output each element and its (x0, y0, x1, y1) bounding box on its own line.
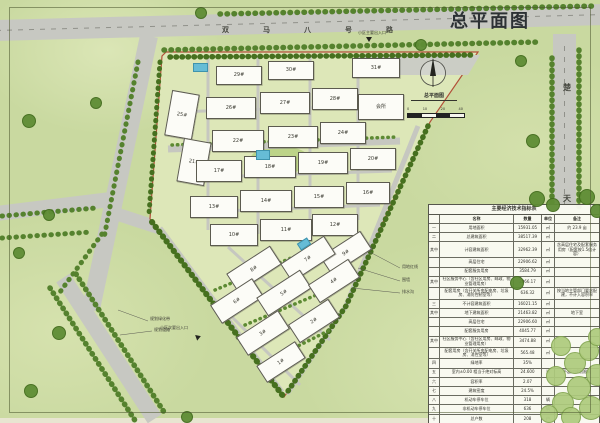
building-label: 23# (288, 135, 299, 140)
cell-seq (429, 327, 440, 335)
table-row: 其中 计容建筑面积 32962.39 ㎡ 含高层住宅及配套服务用房（配套按1.5… (429, 242, 599, 258)
tree-icon (590, 204, 600, 218)
cell-unit: ㎡ (542, 309, 555, 317)
cell-name: 容积率 (440, 378, 514, 386)
table-row: 其中 社区服务中心（含社区用房、邮政、物业管理用房） 3474.88 ㎡ (429, 337, 599, 348)
cell-note (555, 233, 599, 241)
building-label: 会所 (376, 105, 386, 110)
cell-unit: ㎡ (542, 242, 555, 257)
building-label: 7# (304, 255, 313, 263)
cell-name: 配套用房（含开关所变配电房、垃圾房、消控室等） (440, 348, 514, 358)
pool (193, 63, 208, 72)
tree-icon (526, 134, 540, 148)
tree-icon (579, 396, 600, 420)
building-label: 9# (342, 249, 351, 257)
building: 13# (190, 196, 238, 218)
header-name: 名称 (440, 215, 514, 223)
cell-note (555, 268, 599, 276)
building: 20# (350, 148, 396, 170)
building-label: 11# (281, 228, 292, 233)
tree-icon (579, 189, 595, 205)
cell-note: 约 23.9 亩 (555, 224, 599, 232)
cell-name: 社区服务中心（含社区用房、邮政、物业管理用房） (440, 277, 514, 287)
building: 12# (312, 214, 358, 236)
building-label: 8# (250, 265, 259, 273)
table-row: 高层住宅 22906.62 ㎡ (429, 258, 599, 267)
cell-seq: 六 (429, 378, 440, 386)
boundary-note-2: 围墙 (402, 277, 410, 283)
cell-qty: 2.07 (514, 378, 542, 386)
building: 会所 (358, 94, 404, 120)
building-label: 27# (280, 101, 291, 106)
building-label: 28# (330, 97, 341, 102)
cell-name: 建筑密度 (440, 387, 514, 395)
table-row: 二 总建筑面积 38517.39 ㎡ (429, 233, 599, 242)
cell-seq: 八 (429, 396, 440, 404)
cell-seq (429, 288, 440, 298)
cell-unit: ㎡ (542, 233, 555, 241)
building: 28# (312, 88, 358, 110)
tree-icon (195, 7, 207, 19)
cell-qty: 16021.15 (514, 300, 542, 308)
cell-qty: 22906.62 (514, 258, 542, 266)
tree-icon (510, 276, 524, 290)
tree-icon (24, 384, 38, 398)
tree-icon (181, 411, 193, 423)
building: 29# (216, 66, 262, 85)
road-right-centerline (564, 40, 565, 205)
building-label: 1# (277, 358, 286, 366)
building-label: 17# (214, 169, 225, 174)
building: 25# (164, 90, 200, 140)
cell-seq: 三 (429, 300, 440, 308)
tree-icon (90, 97, 102, 109)
cell-qty: 35% (514, 359, 542, 367)
cell-name: 配套服务用房 (440, 327, 514, 335)
scale-10: 10 (423, 107, 427, 111)
building: 23# (268, 126, 318, 148)
road-left-vertical (82, 34, 158, 312)
building-label: 25# (176, 112, 187, 119)
cell-note: 含高层住宅及配套服务用房（配套按1.5倍计容） (555, 242, 599, 257)
building: 10# (210, 224, 258, 246)
cell-name: 总建筑面积 (440, 233, 514, 241)
cell-seq (429, 348, 440, 358)
building-label: 13# (209, 205, 220, 210)
north-arrow-icon (421, 58, 446, 87)
building: 14# (240, 190, 292, 212)
cell-qty: 318 (514, 396, 542, 404)
table-row: 配套用房（含开关所变配电房、垃圾房、消防控制室等） 636.32 ㎡ 按当地主管… (429, 288, 599, 299)
cell-seq: 五 (429, 369, 440, 377)
cell-unit (542, 387, 555, 395)
drawing-title: 总平面图 (450, 7, 530, 33)
cell-note (555, 318, 599, 326)
cell-unit: ㎡ (542, 224, 555, 232)
cell-name: 机动车停车位 (440, 396, 514, 404)
building: 19# (298, 152, 348, 174)
cell-qty: 4045.77 (514, 327, 542, 335)
cell-note (555, 300, 599, 308)
cell-unit: ㎡ (542, 300, 555, 308)
cell-note (555, 277, 599, 287)
building: 5# (256, 270, 312, 317)
cell-qty: 565.48 (514, 348, 542, 358)
header-seq (429, 215, 440, 223)
cell-name: 地下建筑面积 (440, 309, 514, 317)
building: 15# (294, 186, 344, 208)
cell-seq (429, 268, 440, 276)
tree-icon (546, 198, 560, 212)
building: 22# (212, 130, 264, 152)
road-name-right-char1: 楚 (563, 82, 571, 93)
tree-icon (546, 366, 566, 386)
table-title: 主要经济技术指标表 (429, 205, 599, 215)
secondary-entrance-marker-icon (195, 333, 202, 340)
cell-name: 高层住宅 (440, 258, 514, 266)
building: 18# (244, 156, 296, 178)
building-label: 15# (314, 195, 325, 200)
building: 16# (346, 182, 390, 204)
cell-unit: ㎡ (542, 277, 555, 287)
cell-seq: 四 (429, 359, 440, 367)
cell-name: 高层住宅 (440, 318, 514, 326)
cell-name: 用地面积 (440, 224, 514, 232)
compass-caption: 总平面图 (411, 92, 457, 101)
scalebar (407, 113, 465, 118)
tree-icon (540, 405, 558, 423)
scalebar-numbers: 0 10 20 40 (407, 107, 463, 111)
building-label: 2# (310, 317, 319, 325)
road-southwest (56, 274, 161, 423)
cell-name: 配套用房（含开关所变配电房、垃圾房、消防控制室等） (440, 288, 514, 298)
cell-unit: ㎡ (542, 258, 555, 266)
cell-qty: 24.600 (514, 369, 542, 377)
building: 27# (260, 92, 310, 114)
building-label: 29# (234, 73, 245, 78)
building-label: 5# (280, 289, 289, 297)
cell-seq: 九 (429, 405, 440, 413)
pool (256, 150, 270, 160)
tree-icon (43, 209, 55, 221)
building-label: 16# (363, 191, 374, 196)
building-label: 18# (265, 165, 276, 170)
header-qty: 数量 (514, 215, 542, 223)
tree-icon (13, 247, 25, 259)
scale-20: 20 (441, 107, 445, 111)
cell-name: 非机动车停车位 (440, 405, 514, 413)
cell-name: 总户数 (440, 415, 514, 423)
cell-qty: 22906.60 (514, 318, 542, 326)
table-row: 高层住宅 22906.60 ㎡ (429, 318, 599, 327)
scale-0: 0 (407, 107, 409, 111)
cell-seq: 其中 (429, 242, 440, 257)
boundary-note-3: 排水沟 (402, 289, 414, 295)
cell-qty: 3584.79 (514, 268, 542, 276)
tree-icon (529, 191, 545, 207)
building-label: 14# (261, 199, 272, 204)
cell-unit: ㎡ (542, 327, 555, 335)
cell-note: 按当地主管部门要求配建，不计入容积率 (555, 288, 599, 298)
scale-40: 40 (459, 107, 463, 111)
cell-seq: 其中 (429, 337, 440, 347)
building-label: 30# (286, 68, 297, 73)
building: 26# (206, 97, 256, 119)
table-row: 三 不计容建筑面积 16021.15 ㎡ (429, 300, 599, 309)
cell-seq: 二 (429, 233, 440, 241)
tree-icon (515, 55, 527, 67)
table-row: 配套服务用房 4045.77 ㎡ (429, 327, 599, 336)
site-plan-sheet: 29# 30# 31# 25# 26# 27# 28# (0, 0, 600, 423)
cell-note (555, 258, 599, 266)
cell-name: 绿地率 (440, 359, 514, 367)
cell-seq (429, 318, 440, 326)
building: 17# (196, 160, 242, 182)
cell-qty: 3474.88 (514, 337, 542, 347)
tree-icon (22, 114, 36, 128)
building-label: 12# (330, 223, 341, 228)
cell-seq: 七 (429, 387, 440, 395)
cell-qty: 636 (514, 405, 542, 413)
building-label: 19# (318, 161, 329, 166)
building-label: 20# (368, 157, 379, 162)
building-label: 4# (330, 277, 339, 285)
building: 24# (320, 122, 366, 144)
cell-unit: ㎡ (542, 268, 555, 276)
cell-unit: ㎡ (542, 288, 555, 298)
tree-icon (415, 39, 427, 51)
cell-qty: 21463.82 (514, 309, 542, 317)
cell-seq: 十 (429, 415, 440, 423)
building-label: 10# (229, 233, 240, 238)
building-label: 24# (338, 131, 349, 136)
cell-unit: ㎡ (542, 318, 555, 326)
cell-note: 地下室 (555, 309, 599, 317)
southwest-note-2: 规划道路 (154, 327, 170, 333)
building-label: 6# (233, 297, 242, 305)
cell-qty: 38517.39 (514, 233, 542, 241)
cell-seq: 其中 (429, 309, 440, 317)
cell-name: 不计容建筑面积 (440, 300, 514, 308)
tree-icon (561, 407, 581, 423)
cell-name: 室内±0.00 相当于绝对标高 (440, 369, 514, 377)
main-entrance-label: 小区主要出入口 (344, 30, 400, 36)
cell-seq (429, 258, 440, 266)
building: 31# (352, 58, 400, 78)
cell-name: 计容建筑面积 (440, 242, 514, 257)
cell-seq: 一 (429, 224, 440, 232)
building: 30# (268, 61, 314, 80)
building: 2# (288, 299, 340, 344)
building-label: 31# (371, 66, 382, 71)
cell-qty: 15931.05 (514, 224, 542, 232)
table-row: 一 用地面积 15931.05 ㎡ 约 23.9 亩 (429, 224, 599, 233)
boundary-note-1: 用地红线 (402, 264, 418, 270)
southwest-note-1: 规划绿化带 (150, 316, 170, 322)
table-header-row: 名称 数量 单位 备注 (429, 215, 599, 224)
road-left-stub (110, 206, 182, 241)
cell-qty: 24.5% (514, 387, 542, 395)
building: 1# (256, 341, 305, 383)
road-name-right-char2: 天 (563, 193, 571, 204)
cell-name: 社区服务中心（含社区用房、邮政、物业管理用房） (440, 337, 514, 347)
cell-qty: 208 (514, 415, 542, 423)
tree-icon (588, 328, 600, 346)
cell-qty: 32962.39 (514, 242, 542, 257)
cell-seq: 其中 (429, 277, 440, 287)
tree-icon (52, 326, 66, 340)
building-label: 3# (259, 329, 268, 337)
header-unit: 单位 (542, 215, 555, 223)
cell-name: 配套服务用房 (440, 268, 514, 276)
table-row: 其中 地下建筑面积 21463.82 ㎡ 地下室 (429, 309, 599, 318)
building-label: 22# (233, 139, 244, 144)
main-entrance-marker-icon (366, 37, 372, 42)
building-label: 26# (226, 106, 237, 111)
